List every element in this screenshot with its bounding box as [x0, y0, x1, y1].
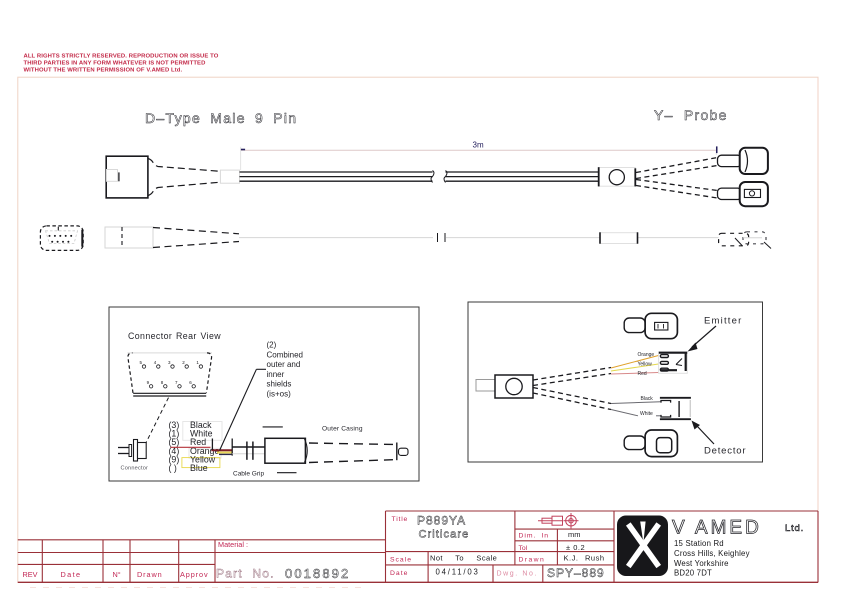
svg-text:04/11/03: 04/11/03 — [436, 568, 480, 577]
svg-text:Detector: Detector — [704, 446, 746, 457]
svg-text:4: 4 — [154, 360, 157, 365]
svg-text:Drawn: Drawn — [519, 557, 546, 564]
svg-text:Drawn: Drawn — [137, 570, 163, 579]
svg-text:SPY–889: SPY–889 — [547, 566, 605, 580]
svg-text:Scale: Scale — [390, 557, 412, 564]
svg-text:Criticare: Criticare — [419, 529, 470, 541]
svg-text:N°: N° — [113, 570, 121, 579]
svg-text:9: 9 — [147, 380, 150, 385]
svg-text:D–Type Male 9 Pin: D–Type Male 9 Pin — [145, 110, 297, 126]
svg-text:REV: REV — [23, 570, 38, 579]
svg-text:V AMED: V AMED — [672, 518, 762, 539]
svg-text:K.J. Rush: K.J. Rush — [564, 554, 605, 563]
svg-text:Black: Black — [641, 396, 654, 402]
svg-text:3: 3 — [168, 360, 171, 365]
svg-text:Orange: Orange — [638, 352, 655, 358]
svg-text:Date: Date — [390, 570, 408, 577]
svg-text:Connector: Connector — [121, 466, 149, 472]
svg-text:ALL RIGHTS STRICTLY RESERVED.: ALL RIGHTS STRICTLY RESERVED. REPRODUCTI… — [24, 54, 219, 60]
svg-text:8: 8 — [161, 380, 164, 385]
svg-text:Material :: Material : — [218, 540, 248, 549]
svg-text:Red: Red — [638, 371, 647, 377]
svg-text:Emitter: Emitter — [704, 316, 743, 327]
svg-text:White: White — [640, 411, 653, 417]
svg-text:2: 2 — [182, 360, 185, 365]
svg-text:Outer Casing: Outer Casing — [322, 426, 363, 433]
svg-text:Not To Scale: Not To Scale — [430, 554, 497, 563]
svg-text:(2): (2) — [267, 341, 277, 350]
svg-text:BD20 7DT: BD20 7DT — [674, 569, 712, 578]
svg-text:Cable Grip: Cable Grip — [233, 471, 264, 478]
svg-text:Combined: Combined — [267, 350, 303, 359]
svg-text:outer and: outer and — [267, 360, 301, 369]
svg-text:Part No.: Part No. — [216, 567, 275, 581]
svg-text:mm: mm — [568, 530, 581, 539]
svg-text:0018892: 0018892 — [285, 566, 350, 581]
svg-text:1: 1 — [196, 360, 199, 365]
svg-text:3m: 3m — [473, 140, 484, 149]
svg-text:Ltd.: Ltd. — [785, 523, 804, 534]
svg-text:Date: Date — [61, 570, 82, 579]
svg-text:Title: Title — [392, 516, 409, 523]
svg-text:P889YA: P889YA — [417, 514, 466, 528]
svg-text:THIRD PARTIES IN ANY FORM WHAT: THIRD PARTIES IN ANY FORM WHATEVER IS NO… — [24, 61, 206, 67]
svg-text:(is+os): (is+os) — [267, 390, 292, 399]
svg-text:West Yorkshire: West Yorkshire — [674, 559, 729, 568]
svg-text:Yellow: Yellow — [638, 362, 653, 368]
svg-text:5: 5 — [140, 360, 143, 365]
svg-text:Cross Hills, Keighley: Cross Hills, Keighley — [674, 549, 750, 558]
svg-text:7: 7 — [175, 380, 178, 385]
svg-text:Tol: Tol — [519, 545, 528, 552]
svg-text:WITHOUT THE WRITTEN PERMISSION: WITHOUT THE WRITTEN PERMISSION OF V.AMED… — [24, 68, 183, 74]
svg-text:( ): ( ) — [169, 463, 177, 473]
svg-text:± 0.2: ± 0.2 — [566, 543, 585, 552]
svg-text:Blue: Blue — [190, 463, 208, 473]
svg-text:Approv: Approv — [180, 570, 209, 579]
svg-text:shields: shields — [267, 380, 292, 389]
svg-text:Y– Probe: Y– Probe — [654, 107, 728, 123]
svg-text:Connector Rear View: Connector Rear View — [128, 331, 221, 341]
svg-text:15 Station Rd: 15 Station Rd — [674, 539, 724, 548]
svg-text:Dwg. No.: Dwg. No. — [497, 571, 539, 578]
svg-text:Dim. In: Dim. In — [519, 533, 550, 540]
svg-text:6: 6 — [189, 380, 192, 385]
svg-text:inner: inner — [267, 370, 285, 379]
